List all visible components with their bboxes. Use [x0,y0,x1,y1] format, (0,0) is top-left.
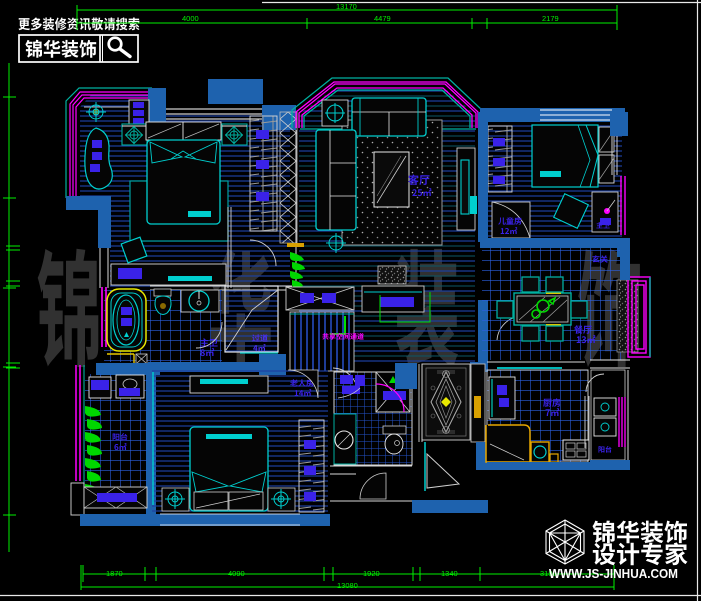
svg-text:4479: 4479 [374,14,391,23]
svg-text:4090: 4090 [228,569,245,578]
svg-text:WWW.JS-JINHUA.COM: WWW.JS-JINHUA.COM [549,566,678,581]
svg-text:2179: 2179 [542,14,559,23]
svg-text:1870: 1870 [106,569,123,578]
svg-text:1920: 1920 [363,569,380,578]
svg-text:4000: 4000 [182,14,199,23]
svg-text:13080: 13080 [337,581,358,590]
svg-text:13170: 13170 [336,2,357,11]
svg-text:1340: 1340 [441,569,458,578]
